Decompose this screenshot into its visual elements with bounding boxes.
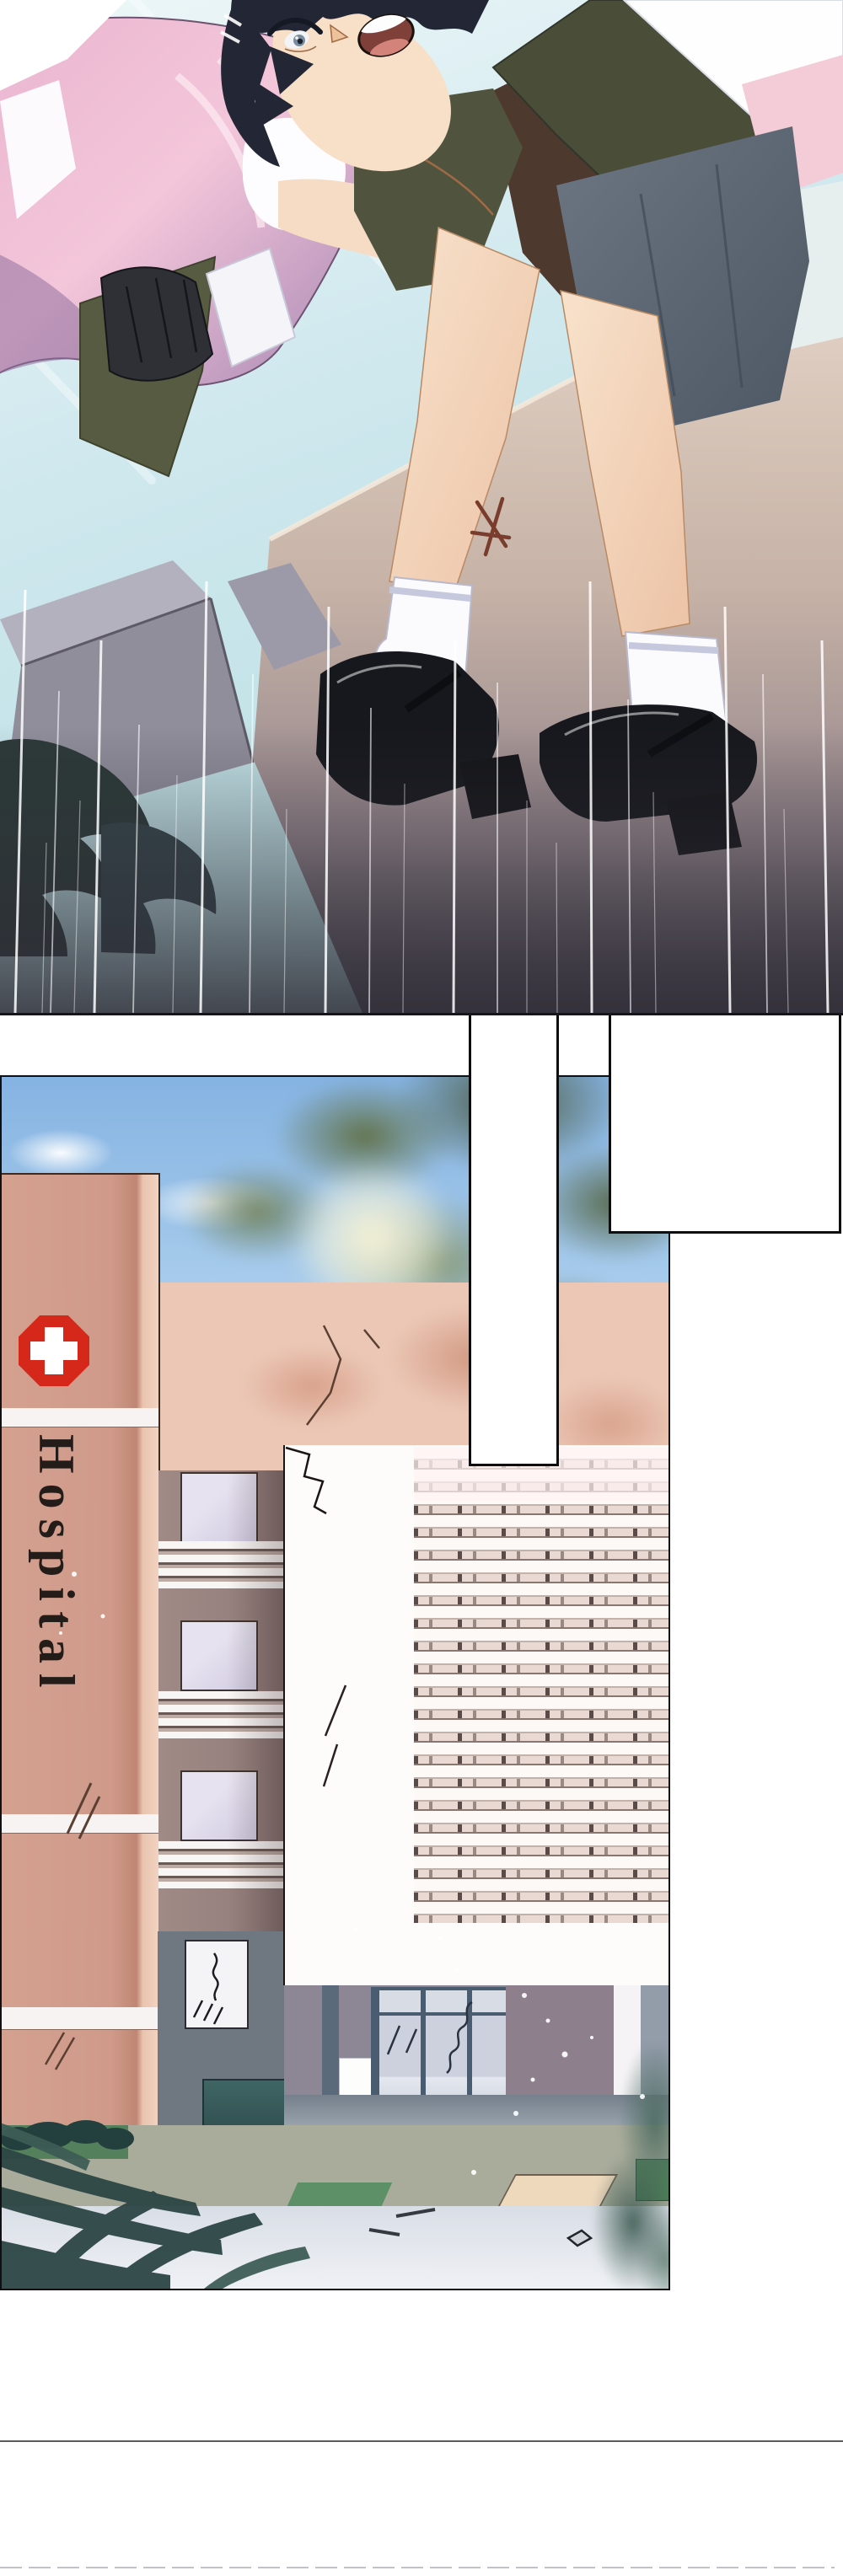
light-speckles xyxy=(59,1572,645,2175)
wall-cracks xyxy=(46,1325,379,2070)
caption-box-square xyxy=(609,1015,841,1234)
face-corner-crack xyxy=(286,1448,326,1513)
panel-2-hospital-exterior: Hospital xyxy=(0,1075,670,2290)
foreground-palm-fronds xyxy=(2,2122,310,2289)
bottom-dark-vignette xyxy=(0,725,843,1013)
divider-line-2 xyxy=(0,2567,835,2568)
divider-line-1 xyxy=(0,2440,843,2442)
face-scratches xyxy=(324,1685,346,1786)
panel-1-art xyxy=(0,0,843,1013)
panel-1-rooftop-action xyxy=(0,0,843,1015)
pavement-diamond xyxy=(568,2231,591,2246)
poster-squiggle xyxy=(194,1953,223,2024)
panel-2-details xyxy=(2,1077,668,2289)
glass-cracks xyxy=(388,2002,472,2073)
comic-page: Hospital xyxy=(0,0,843,2576)
caption-box-tall-strip xyxy=(469,1015,559,1466)
pavement-marks xyxy=(369,2209,435,2235)
